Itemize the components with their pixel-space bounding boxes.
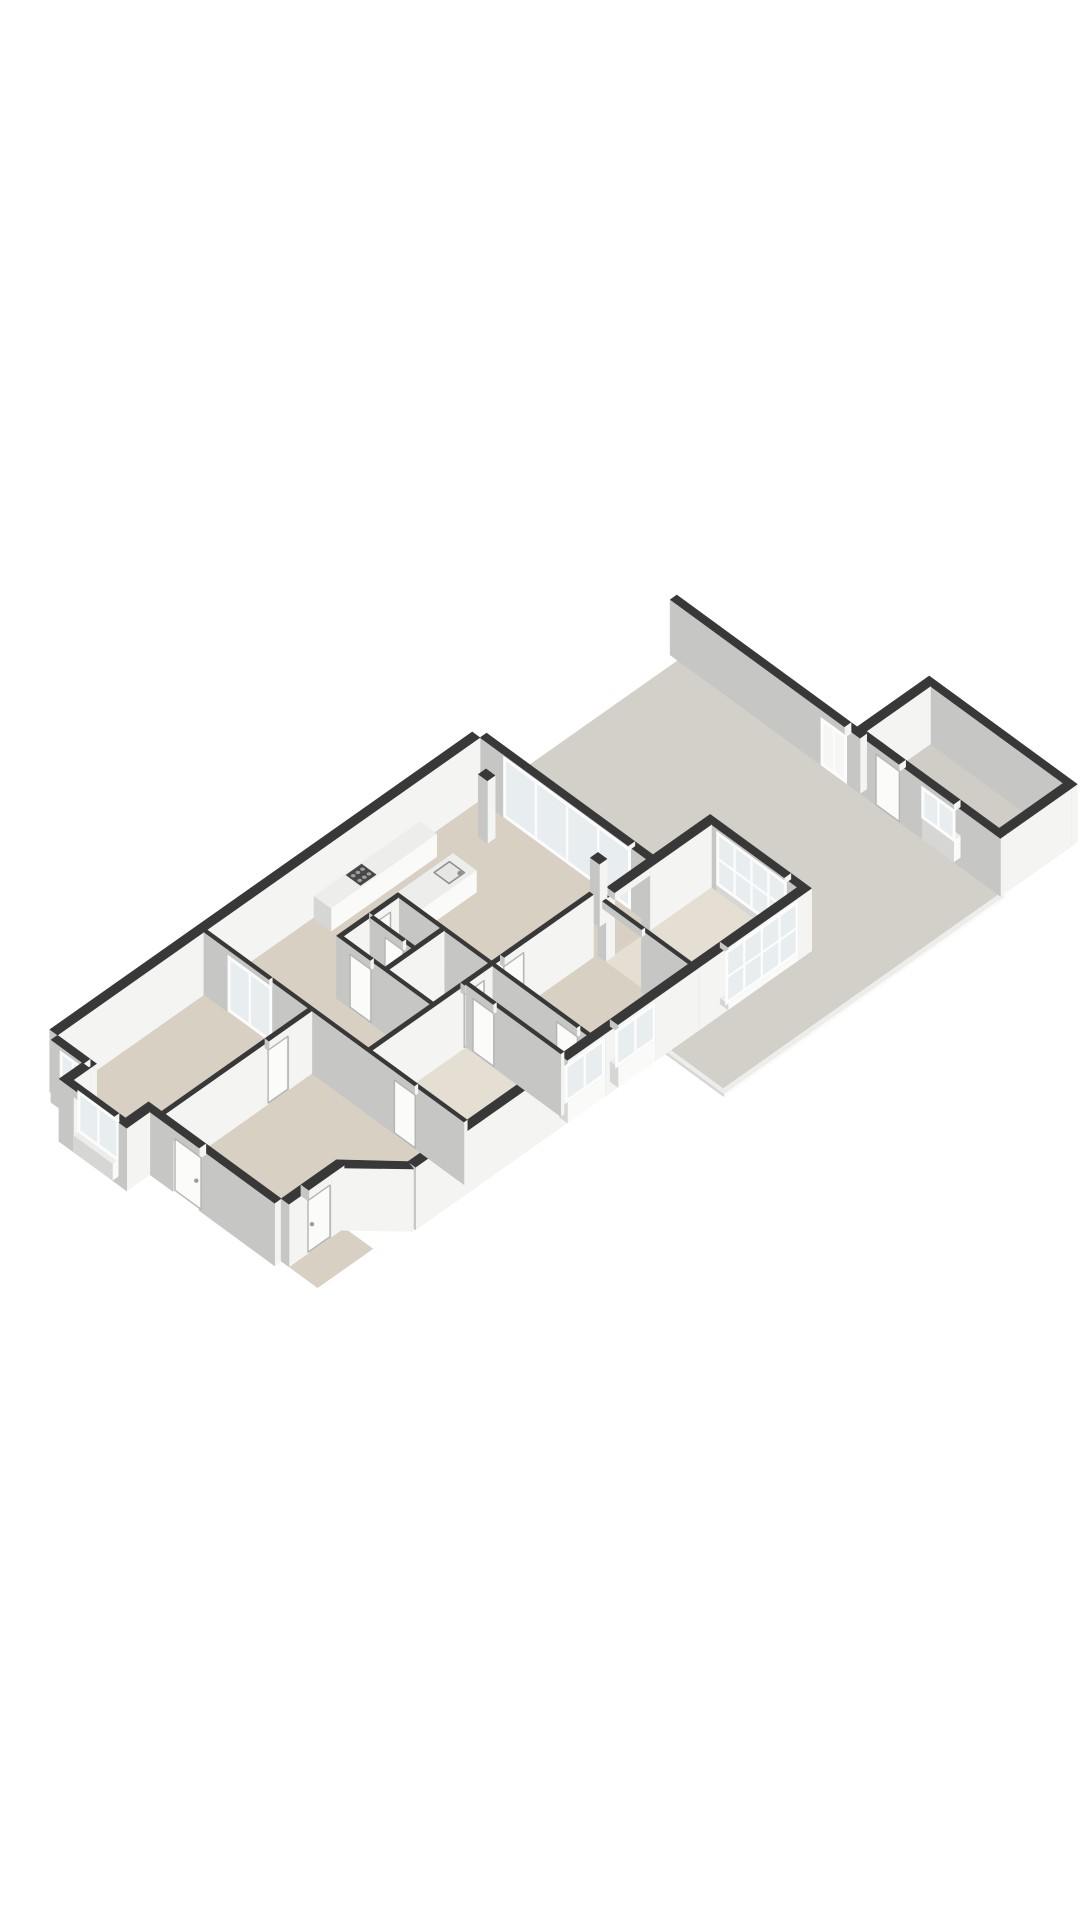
porch-diagonal-wall (336, 1160, 413, 1232)
floorplan-page (0, 0, 1080, 1920)
column-2 (478, 769, 495, 844)
floorplan-3d-render (0, 0, 1080, 1920)
